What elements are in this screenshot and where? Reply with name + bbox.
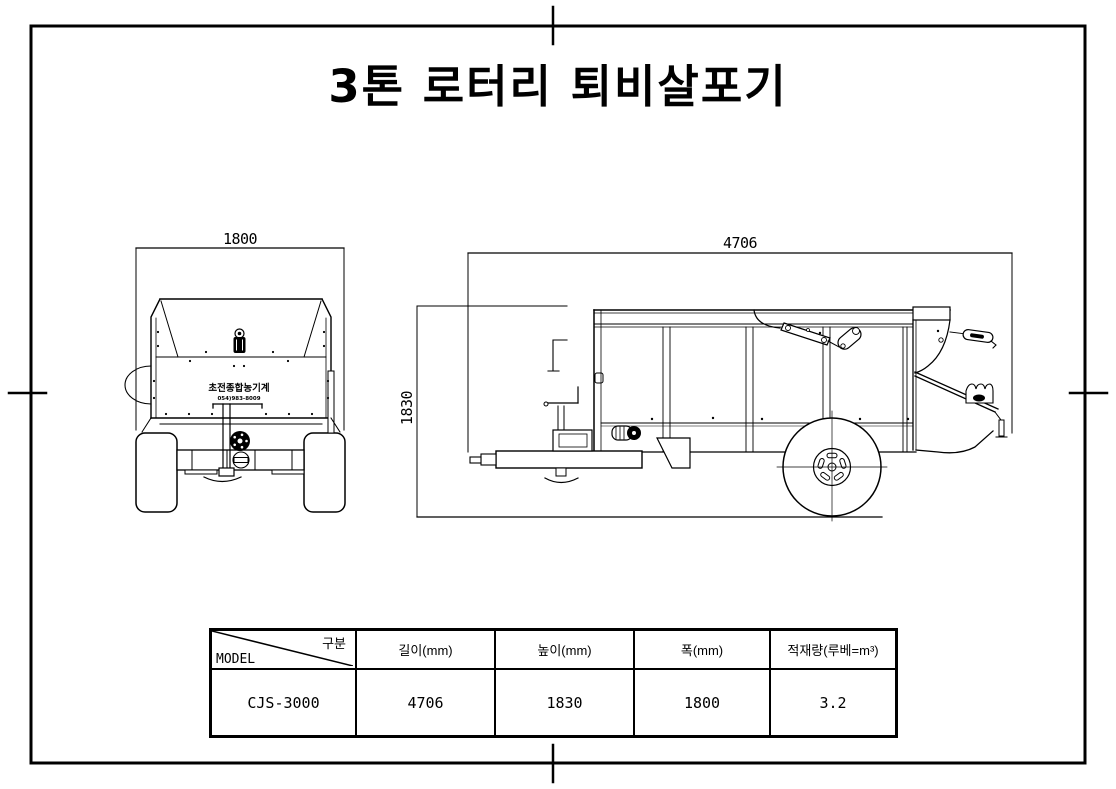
body-divider-1 — [663, 327, 670, 452]
drawing-sheet: 3톤 로터리 퇴비살포기 1800 — [0, 0, 1116, 789]
top-control-arm — [754, 310, 864, 352]
cell-capacity: 3.2 — [769, 668, 895, 735]
header-capacity: 적재량(루베=m³) — [769, 631, 895, 668]
header-width: 폭(mm) — [633, 631, 769, 668]
side-bolts — [651, 417, 909, 420]
front-pto-icon — [234, 329, 246, 353]
side-dimension-1830: 1830 — [398, 306, 567, 517]
hitch-assembly — [470, 451, 642, 483]
rear-spreader — [913, 307, 1007, 453]
header-length: 길이(mm) — [355, 631, 494, 668]
header-height: 높이(mm) — [494, 631, 633, 668]
body-divider-4 — [903, 327, 907, 452]
rear-handle — [950, 329, 996, 348]
page-title: 3톤 로터리 퇴비살포기 — [0, 50, 1116, 115]
cell-length: 4706 — [355, 668, 494, 735]
jack-assembly — [544, 387, 592, 451]
side-dimension-4706: 4706 — [468, 234, 1012, 452]
corner-label-model: MODEL — [216, 652, 255, 667]
cell-height: 1830 — [494, 668, 633, 735]
brand-name-label: 초전종합농기계 — [208, 382, 269, 394]
cell-width: 1800 — [633, 668, 769, 735]
frame-support-wedge — [657, 438, 690, 468]
front-width-label: 1800 — [223, 230, 258, 248]
front-left-wheel — [136, 433, 177, 512]
table-corner-cell: 구분 MODEL — [212, 631, 355, 668]
front-sprocket — [230, 431, 250, 451]
rear-pin — [996, 420, 1007, 437]
front-wall-bracket — [548, 340, 567, 371]
front-hitch-eye — [233, 452, 249, 468]
side-view: 4706 1830 — [398, 234, 1012, 521]
front-side-bulge — [125, 366, 151, 404]
rear-underside — [916, 431, 993, 453]
brand-phone-label: 054)983-8009 — [217, 396, 260, 402]
label-shelf — [213, 404, 262, 408]
body-divider-2 — [746, 327, 753, 452]
front-wall-fitting — [595, 373, 603, 383]
side-height-label: 1830 — [398, 390, 416, 425]
front-hopper — [125, 299, 340, 433]
cell-model: CJS-3000 — [212, 668, 355, 735]
side-length-label: 4706 — [723, 234, 758, 252]
side-body — [548, 310, 950, 452]
front-right-wheel — [304, 433, 345, 512]
spec-table: 구분 MODEL 길이(mm) 높이(mm) 폭(mm) 적재량(루베=m³) … — [209, 628, 898, 738]
front-side-bar — [328, 371, 334, 433]
rear-serrated-guard — [966, 384, 993, 403]
front-view: 1800 — [125, 230, 345, 512]
side-wheel — [777, 411, 887, 521]
pto-shaft — [612, 426, 641, 440]
corner-label-gubun: 구분 — [322, 633, 346, 652]
rear-curved-wall — [915, 320, 950, 373]
